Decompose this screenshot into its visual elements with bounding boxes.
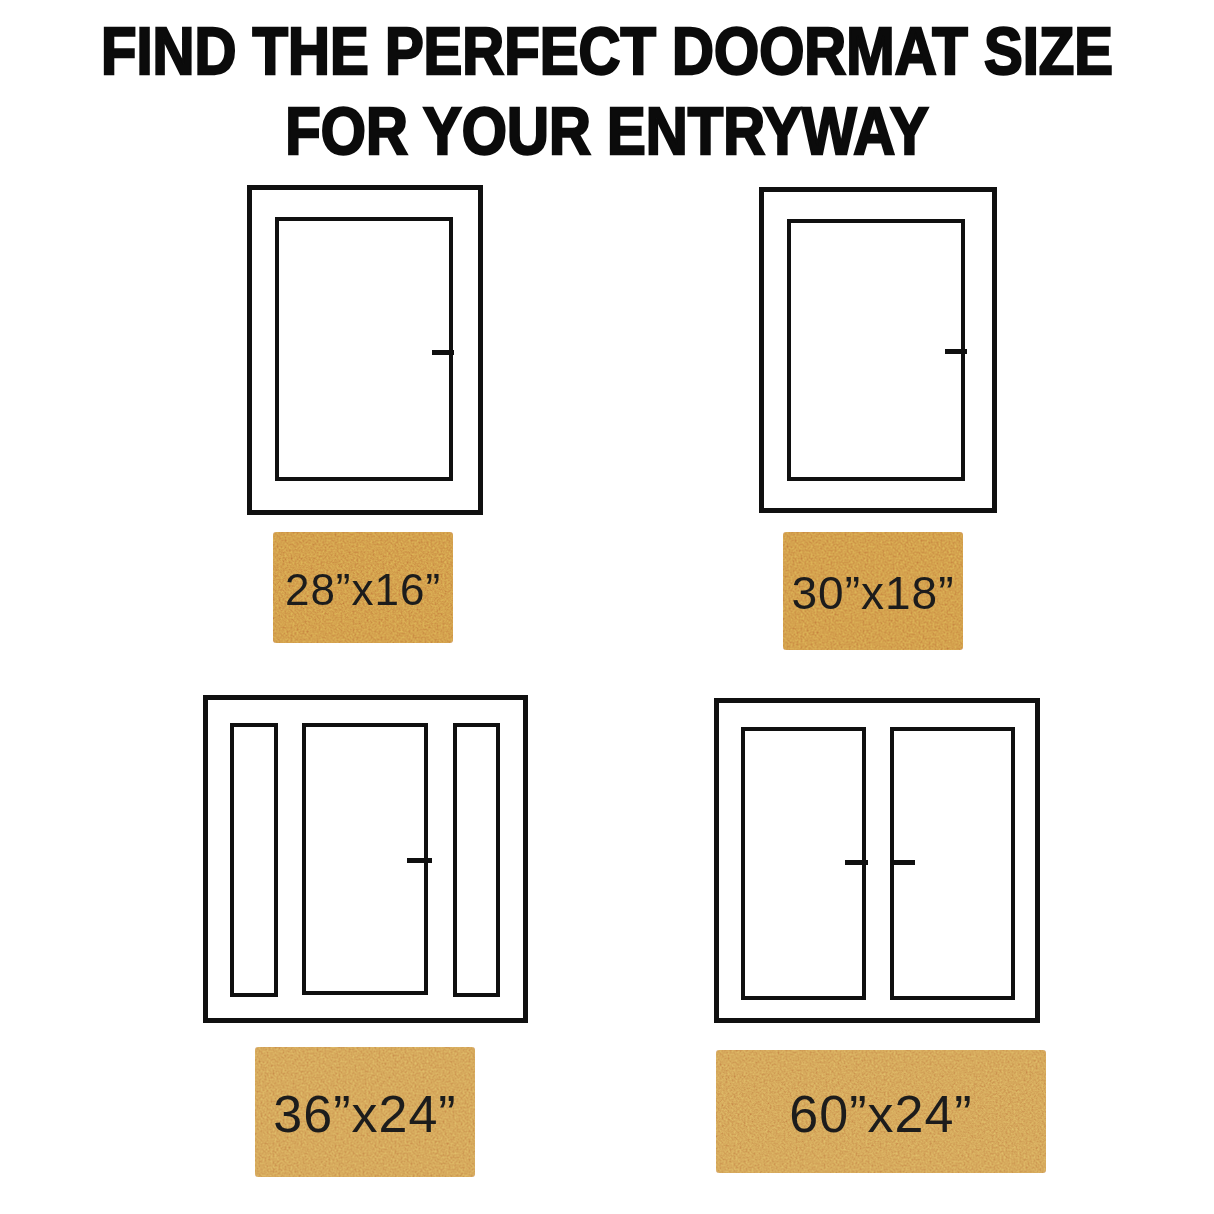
doormat-size-label: 28”x16” (285, 561, 441, 615)
sidelight-panel-right (453, 723, 500, 997)
door-handle-right (890, 860, 915, 865)
sidelight-panel-left (230, 723, 278, 997)
doormat-28x16: 28”x16” (273, 532, 453, 643)
door-handle (945, 349, 967, 354)
title-line-1: FIND THE PERFECT DOORMAT SIZE (73, 11, 1141, 91)
door-handle-left (845, 860, 868, 865)
page-title: FIND THE PERFECT DOORMAT SIZE FOR YOUR E… (0, 11, 1214, 171)
door-handle (432, 350, 454, 355)
single-door-illustration-1 (247, 185, 483, 515)
single-door-illustration-2 (759, 187, 997, 513)
door-panel (275, 217, 453, 481)
doormat-size-label: 30”x18” (792, 562, 955, 620)
door-with-sidelights-illustration (203, 695, 528, 1023)
door-handle (407, 858, 432, 863)
doormat-size-label: 36”x24” (273, 1080, 456, 1144)
doormat-60x24: 60”x24” (716, 1050, 1046, 1173)
doormat-30x18: 30”x18” (783, 532, 963, 650)
double-door-illustration (714, 698, 1040, 1023)
doormat-size-label: 60”x24” (789, 1080, 972, 1144)
title-line-2: FOR YOUR ENTRYWAY (73, 91, 1141, 171)
doormat-36x24: 36”x24” (255, 1047, 475, 1177)
door-panel (787, 219, 965, 481)
